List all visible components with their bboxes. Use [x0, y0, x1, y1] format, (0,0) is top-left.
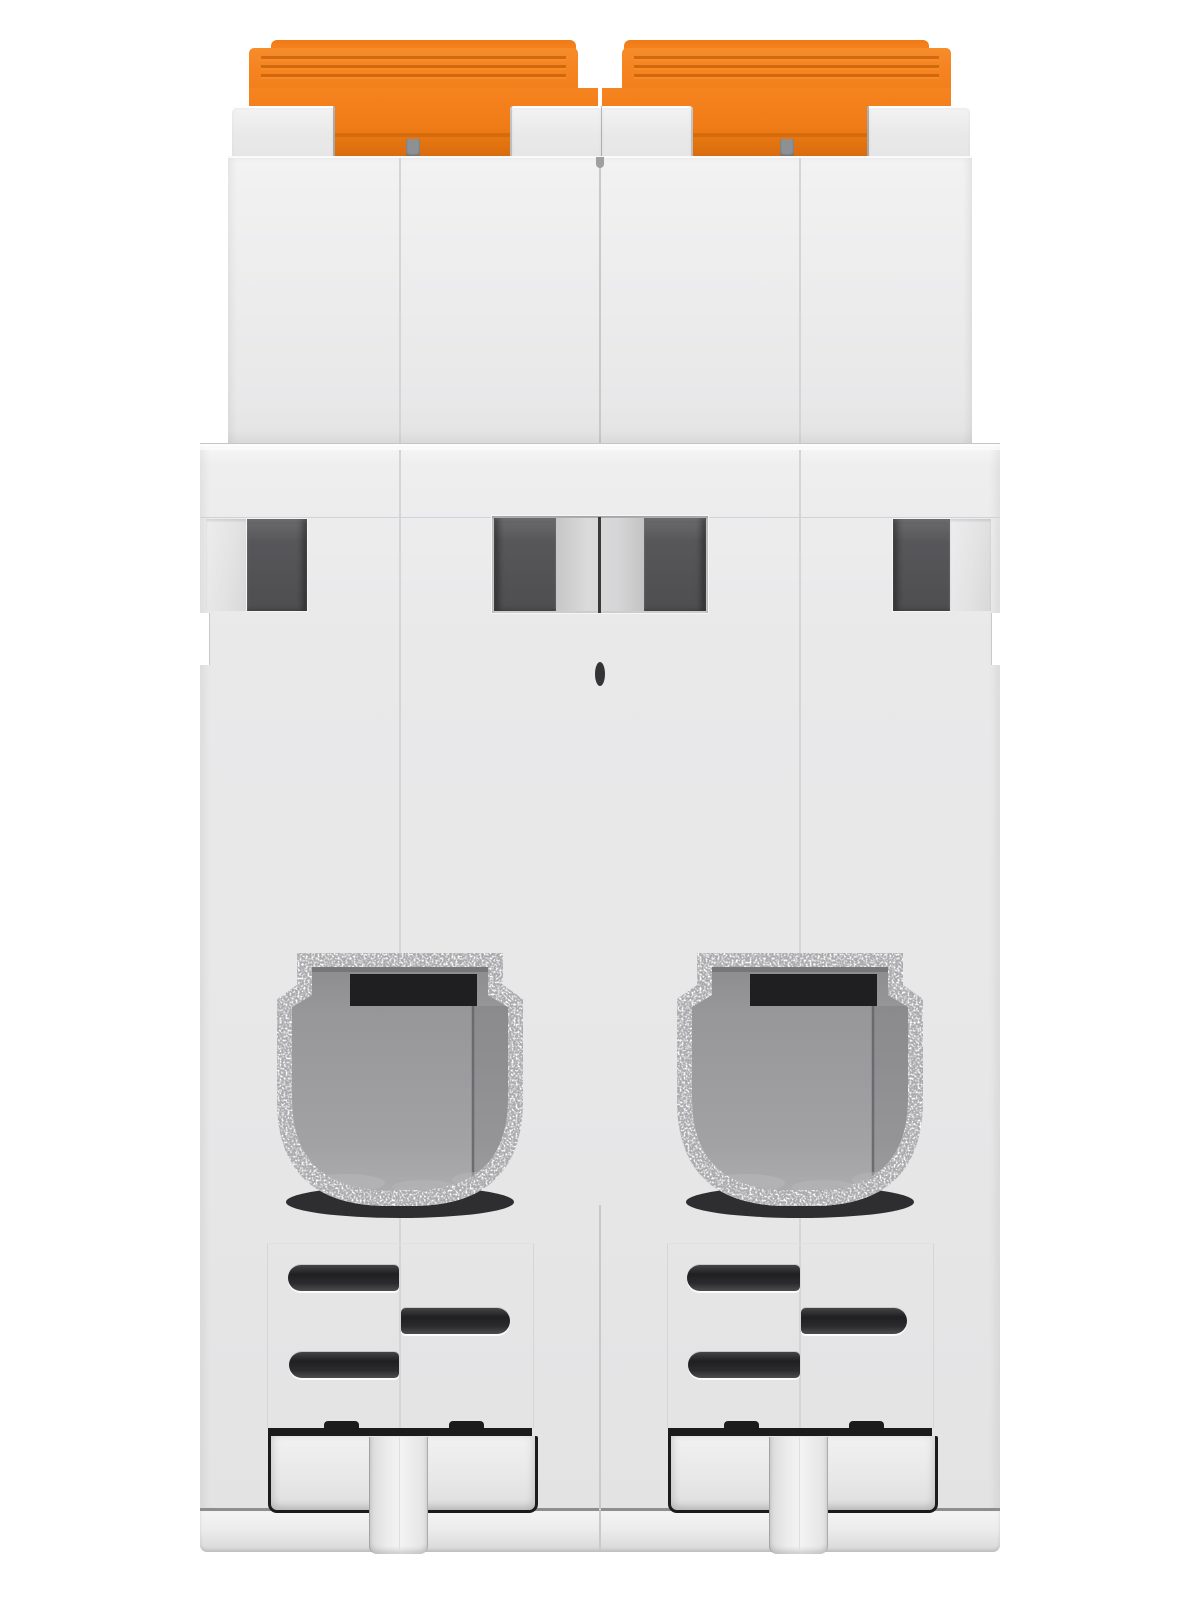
circuit-breaker — [0, 0, 1200, 1600]
center-seam-bottom — [599, 1436, 601, 1550]
vent-panel-right-edge-b — [933, 1243, 934, 1428]
vent-panel-right-edge-a — [667, 1243, 668, 1428]
vent-panel-right-top — [667, 1243, 934, 1244]
vent-panel-left-edge-a — [267, 1243, 268, 1428]
vent-slot-right-top — [687, 1265, 800, 1291]
vent-slot-right-bottom — [688, 1352, 800, 1378]
terminal-opening-right — [677, 953, 923, 1218]
pole-seam-right-bottom — [799, 1437, 800, 1549]
terminal-opening-left — [277, 953, 523, 1218]
pole-seam-left-bottom — [399, 1437, 400, 1549]
vent-slot-left-top — [288, 1265, 399, 1291]
vent-slot-left-bottom — [289, 1352, 399, 1378]
vent-panel-left-edge-b — [533, 1243, 534, 1428]
vent-slot-left-middle — [401, 1308, 510, 1334]
vent-panel-left-top — [267, 1243, 534, 1244]
vent-slot-right-middle — [801, 1308, 907, 1334]
terminal-openings — [0, 0, 1200, 1600]
